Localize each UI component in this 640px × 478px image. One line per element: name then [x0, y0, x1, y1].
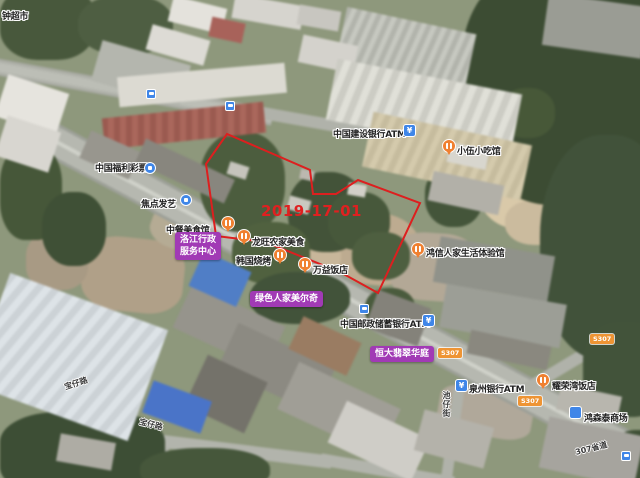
poi-icon[interactable]: [621, 451, 631, 461]
gov-center-line1: 洛江行政: [180, 234, 216, 246]
shopping-mall-icon[interactable]: [569, 406, 582, 419]
restaurant-pin-icon[interactable]: [299, 258, 311, 270]
atm-icon[interactable]: ¥: [422, 314, 435, 327]
bus-stop-icon[interactable]: [225, 101, 235, 111]
road-badge-s307: S307: [438, 348, 462, 358]
poi-label-longwang-farm-food[interactable]: 龙旺农家美食: [252, 235, 304, 248]
restaurant-pin-icon[interactable]: [443, 140, 455, 152]
poi-label-korean-bbq[interactable]: 韩国烧烤: [236, 254, 271, 267]
poi-label-lvse-meierqi[interactable]: 绿色人家美尔奇: [250, 291, 323, 307]
date-annotation: 2019-17-01: [261, 202, 362, 220]
poi-label-supermarket[interactable]: 钟超市: [2, 9, 28, 22]
restaurant-pin-icon[interactable]: [238, 230, 250, 242]
road-label-chizai-street: 池仔街: [441, 391, 452, 418]
terrain-shape: [208, 17, 245, 44]
terrain-shape: [297, 5, 342, 32]
satellite-terrain: [0, 0, 640, 478]
poi-label-yaorongwan[interactable]: 耀荣湾饭店: [552, 379, 596, 392]
poi-label-xiaowu-snack[interactable]: 小伍小吃馆: [457, 144, 501, 157]
bus-stop-icon[interactable]: [146, 89, 156, 99]
poi-label-hongsen-mall[interactable]: 鸿森泰商场: [584, 411, 628, 424]
poi-label-china-welfare-lottery[interactable]: 中国福利彩票: [95, 161, 147, 174]
poi-label-quanzhou-bank-atm[interactable]: 泉州银行ATM: [469, 382, 524, 395]
road-badge-s307: S307: [518, 396, 542, 406]
hair-salon-poi-icon[interactable]: [180, 194, 192, 206]
satellite-map[interactable]: 2019-17-01 钟超市 中国福利彩票 焦点发艺 中国建设银行ATM ¥ 小…: [0, 0, 640, 478]
restaurant-pin-icon[interactable]: [412, 243, 424, 255]
poi-label-luojiang-gov-center[interactable]: 洛江行政 服务中心: [175, 232, 221, 260]
poi-label-hengda-feicui[interactable]: 恒大翡翠华庭: [370, 346, 434, 362]
terrain-shape: [140, 448, 270, 478]
bus-stop-icon[interactable]: [359, 304, 369, 314]
gov-center-line2: 服务中心: [180, 246, 216, 258]
road-badge-s307: S307: [590, 334, 614, 344]
restaurant-pin-icon[interactable]: [274, 249, 286, 261]
restaurant-pin-icon[interactable]: [222, 217, 234, 229]
poi-label-hongxin[interactable]: 鸿信人家生活体验馆: [426, 246, 504, 259]
terrain-shape: [352, 232, 410, 280]
poi-label-wanyi-restaurant[interactable]: 万益饭店: [313, 263, 348, 276]
terrain-shape: [42, 192, 106, 266]
poi-label-psbc-atm[interactable]: 中国邮政储蓄银行ATM: [340, 317, 430, 330]
poi-label-ccb-atm[interactable]: 中国建设银行ATM: [333, 127, 406, 140]
lottery-poi-icon[interactable]: [144, 162, 156, 174]
atm-icon[interactable]: ¥: [403, 124, 416, 137]
poi-label-hair-salon[interactable]: 焦点发艺: [141, 197, 176, 210]
atm-icon[interactable]: ¥: [455, 379, 468, 392]
restaurant-pin-icon[interactable]: [537, 374, 549, 386]
